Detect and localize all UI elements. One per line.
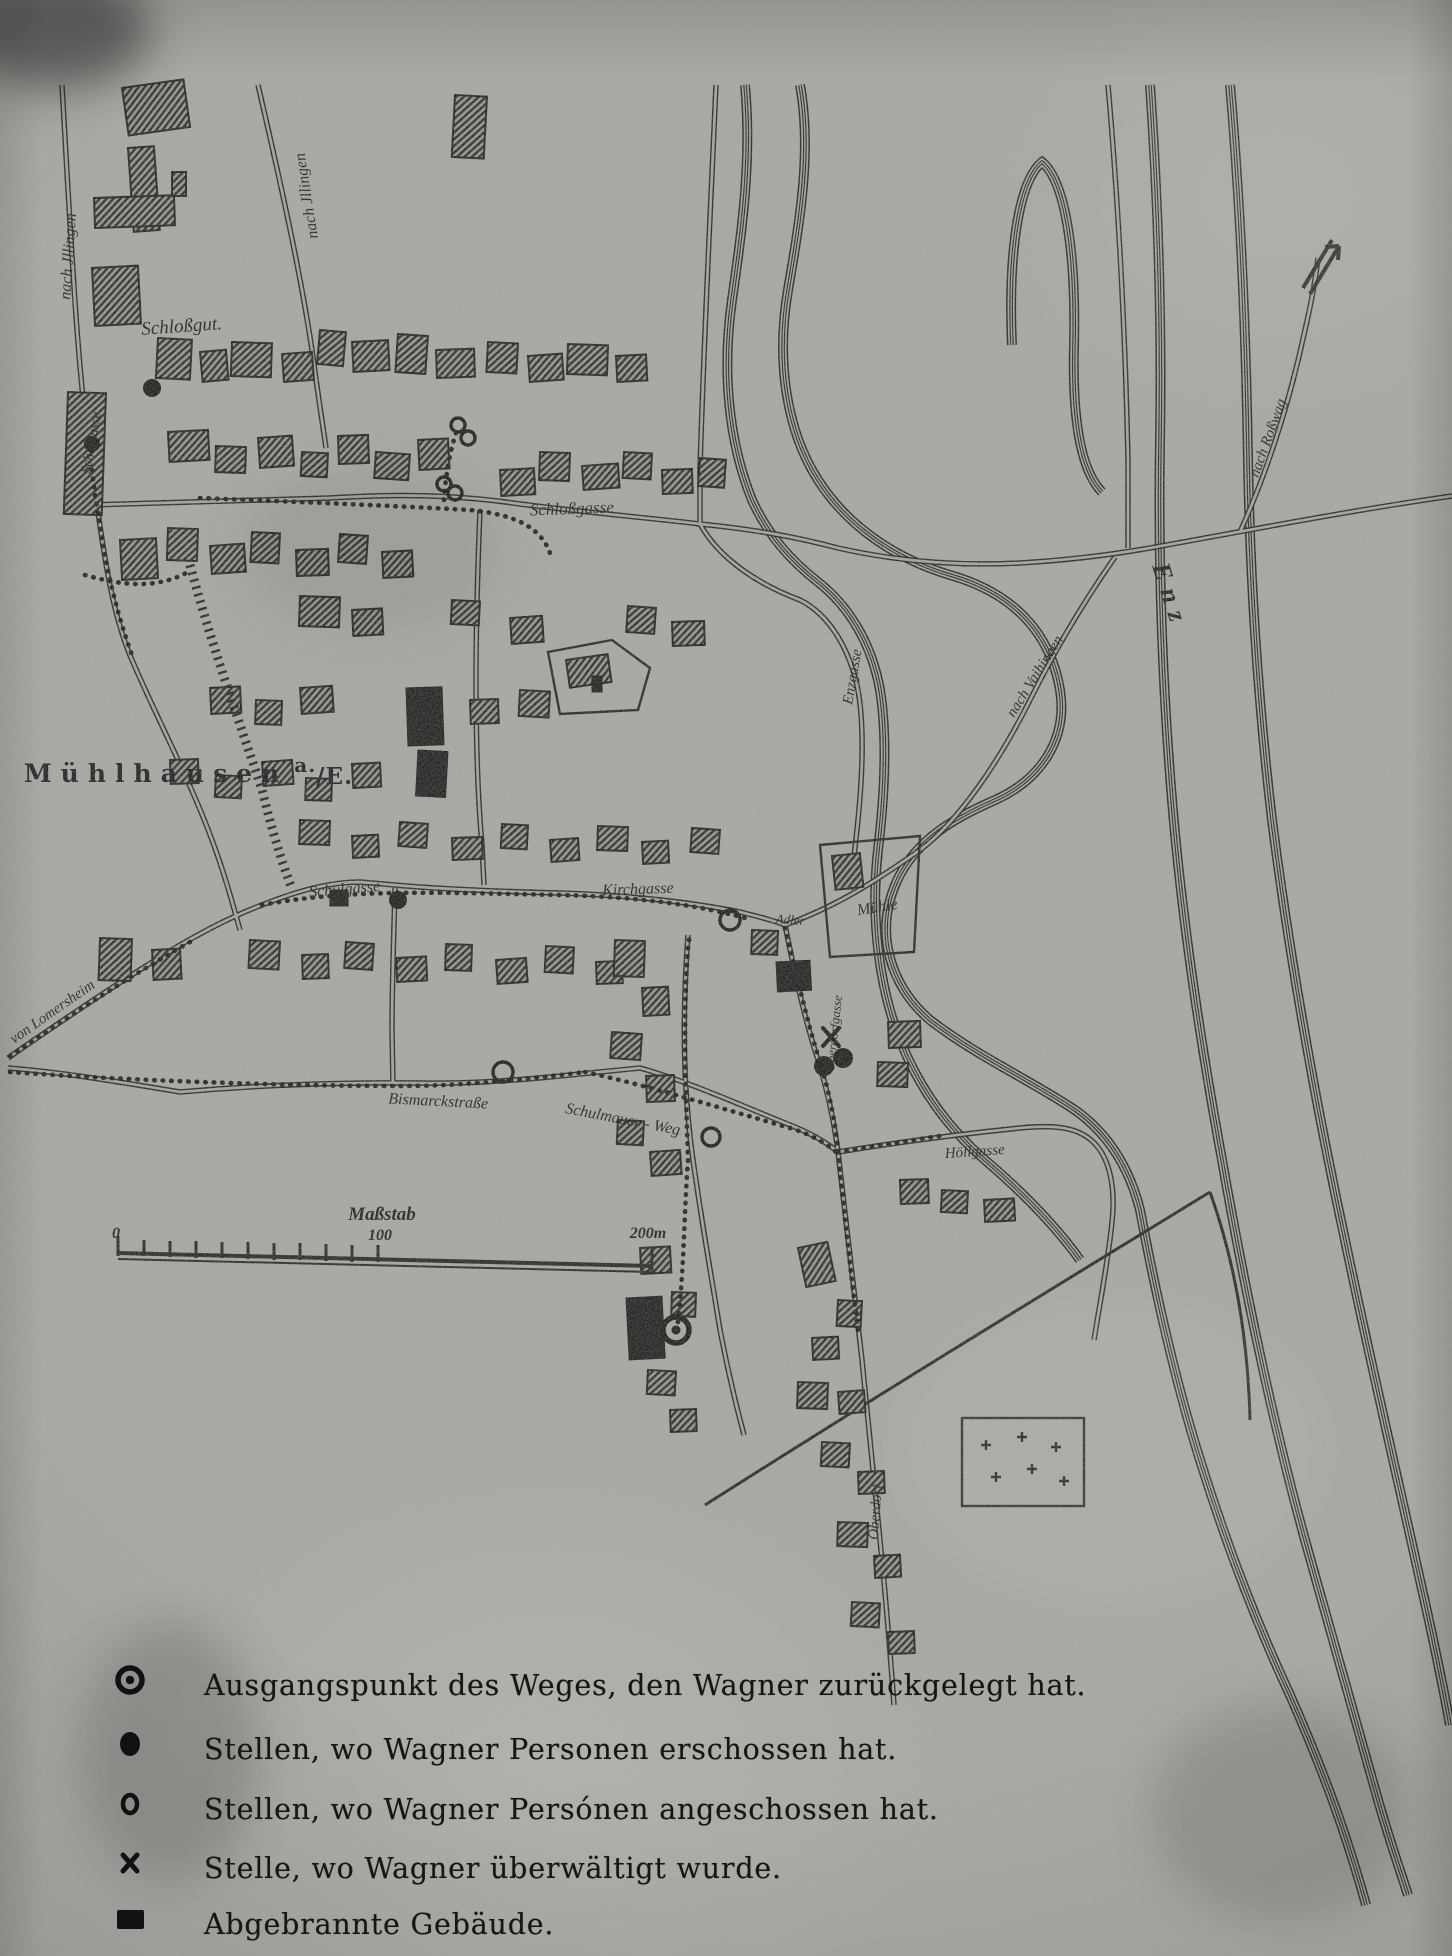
legend-label: Stelle, wo Wagner überwältigt wurde.: [204, 1852, 782, 1885]
legend-label: Stellen, wo Wagner Personen erschossen h…: [204, 1733, 897, 1766]
legend-item: Abgebrannte Gebäude.: [112, 1901, 554, 1947]
photo-of-historic-map: Maßstab 0 100 200m Mühlhausena./E. Schlo…: [0, 0, 1452, 1956]
legend-label: Abgebrannte Gebäude.: [204, 1908, 554, 1941]
legend-item: Stellen, wo Wagner Personen erschossen h…: [112, 1726, 897, 1772]
legend-item: Stelle, wo Wagner überwältigt wurde.: [112, 1845, 782, 1891]
legend-label: Stellen, wo Wagner Persónen angeschossen…: [204, 1793, 939, 1826]
legend-label: Ausgangspunkt des Weges, den Wagner zurü…: [204, 1669, 1086, 1702]
legend-item: Stellen, wo Wagner Persónen angeschossen…: [112, 1786, 939, 1832]
legend-item: Ausgangspunkt des Weges, den Wagner zurü…: [112, 1662, 1086, 1708]
